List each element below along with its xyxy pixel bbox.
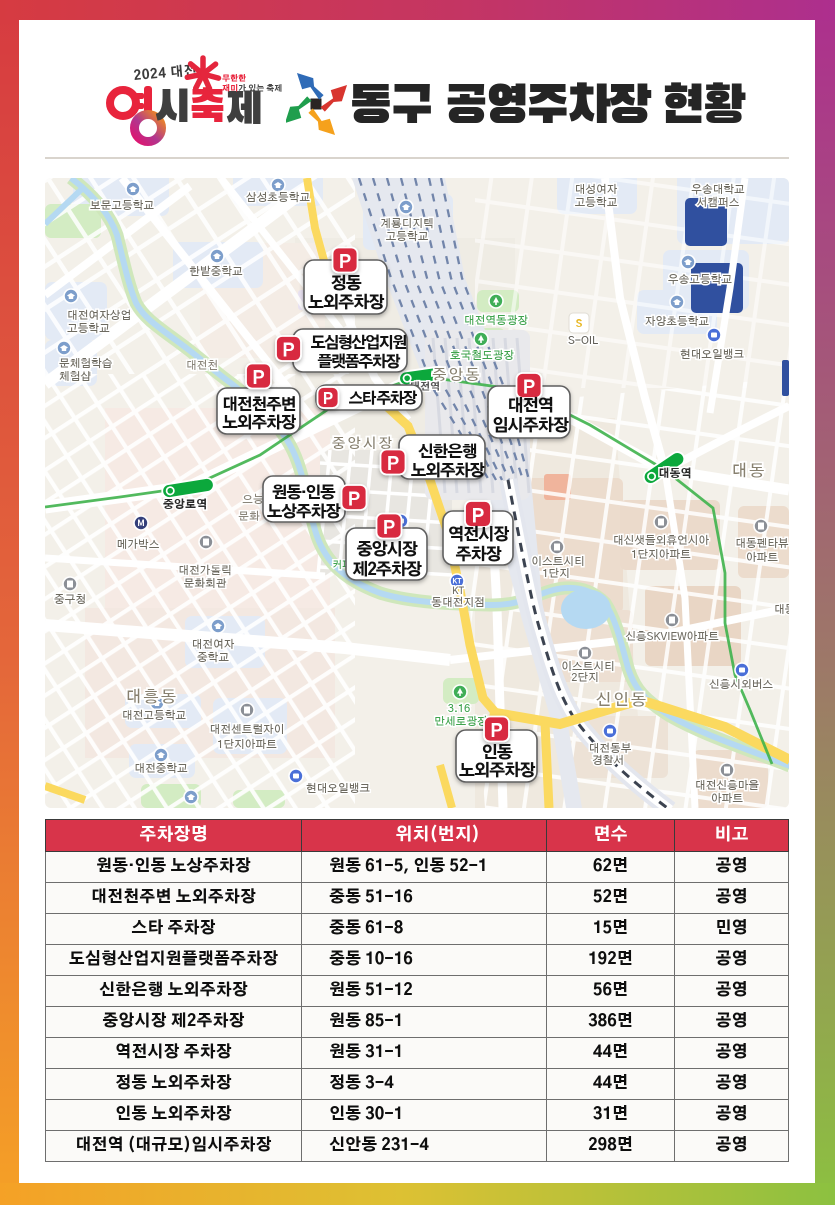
svg-text:대동역: 대동역 <box>658 467 691 480</box>
svg-text:신흥SKVIEW아파트: 신흥SKVIEW아파트 <box>625 630 719 643</box>
svg-text:신흥시외버스: 신흥시외버스 <box>709 679 773 691</box>
svg-text:이스트시티: 이스트시티 <box>531 556 585 568</box>
svg-text:P: P <box>523 380 535 398</box>
svg-text:중학교: 중학교 <box>197 651 229 664</box>
svg-text:으능: 으능 <box>242 493 264 506</box>
svg-text:현대오일뱅크: 현대오일뱅크 <box>680 348 744 361</box>
svg-text:체험샵: 체험샵 <box>59 370 91 383</box>
svg-text:한밭중학교: 한밭중학교 <box>189 265 243 278</box>
svg-text:대전천: 대전천 <box>186 359 218 372</box>
svg-text:시: 시 <box>154 88 190 132</box>
svg-text:문체험학습: 문체험학습 <box>59 357 113 370</box>
svg-text:보문고등학교: 보문고등학교 <box>90 199 154 212</box>
svg-text:동대전지점: 동대전지점 <box>431 596 485 609</box>
svg-text:1단지아파트: 1단지아파트 <box>217 738 277 751</box>
svg-text:S: S <box>576 319 583 330</box>
svg-text:대전고등학교: 대전고등학교 <box>122 709 186 722</box>
svg-text:노외주차장: 노외주차장 <box>222 414 297 432</box>
svg-text:중앙시장: 중앙시장 <box>332 436 394 451</box>
svg-text:현대오일뱅크: 현대오일뱅크 <box>306 782 370 795</box>
svg-text:대전역동광장: 대전역동광장 <box>464 314 528 327</box>
svg-text:대전중학교: 대전중학교 <box>134 762 188 775</box>
svg-text:문화회관: 문화회관 <box>184 577 227 590</box>
svg-text:P: P <box>282 343 294 361</box>
svg-text:우송대학교: 우송대학교 <box>691 183 745 196</box>
svg-text:P: P <box>252 370 264 388</box>
svg-text:중구청: 중구청 <box>54 593 86 606</box>
svg-text:S-OIL: S-OIL <box>568 336 598 347</box>
svg-text:우송고등학교: 우송고등학교 <box>668 273 732 286</box>
svg-text:계룡디지텍: 계룡디지텍 <box>380 218 434 230</box>
svg-text:P: P <box>383 520 395 538</box>
svg-text:KT: KT <box>452 578 462 586</box>
svg-text:대전신흥마을: 대전신흥마을 <box>695 779 759 792</box>
svg-text:무한한: 무한한 <box>222 74 246 83</box>
svg-text:대신샛들외휴언시아: 대신샛들외휴언시아 <box>613 534 710 547</box>
svg-text:P: P <box>348 492 360 510</box>
svg-text:P: P <box>323 392 333 408</box>
svg-text:1단지아파트: 1단지아파트 <box>631 548 691 561</box>
svg-text:인동: 인동 <box>481 743 513 762</box>
svg-text:아파트: 아파트 <box>711 792 743 805</box>
svg-text:신인동: 신인동 <box>596 692 649 709</box>
svg-text:대전가톨릭: 대전가톨릭 <box>178 564 232 577</box>
svg-text:정동: 정동 <box>330 274 362 293</box>
svg-text:대흥동: 대흥동 <box>126 689 179 706</box>
svg-text:삼성초등학교: 삼성초등학교 <box>246 191 310 204</box>
svg-text:경찰서: 경찰서 <box>592 754 624 767</box>
svg-text:고등학교: 고등학교 <box>575 196 618 209</box>
svg-text:고등학교: 고등학교 <box>67 322 110 335</box>
svg-text:만세로광장: 만세로광장 <box>434 715 488 728</box>
svg-text:1단지: 1단지 <box>542 567 570 580</box>
svg-text:대동펜타뷰: 대동펜타뷰 <box>735 537 789 550</box>
svg-text:대성여자: 대성여자 <box>575 183 618 196</box>
svg-text:대전센트럴자이: 대전센트럴자이 <box>210 723 285 736</box>
svg-text:대전역: 대전역 <box>507 396 553 415</box>
svg-text:재미가 있는 축제: 재미가 있는 축제 <box>222 84 282 93</box>
svg-text:대전동부: 대전동부 <box>589 742 632 755</box>
svg-text:P: P <box>339 254 351 272</box>
svg-text:노외주차장: 노외주차장 <box>459 761 537 780</box>
svg-text:고등학교: 고등학교 <box>386 230 429 243</box>
svg-text:2단지: 2단지 <box>571 671 599 684</box>
svg-text:자양초등학교: 자양초등학교 <box>645 315 709 328</box>
svg-text:임시주차장: 임시주차장 <box>492 416 570 435</box>
svg-text:P: P <box>387 456 399 474</box>
svg-text:대동초: 대동초 <box>774 603 789 616</box>
svg-text:중앙로역: 중앙로역 <box>163 498 207 511</box>
svg-text:노외주차장: 노외주차장 <box>410 462 485 480</box>
svg-text:P: P <box>490 723 502 741</box>
svg-text:중앙시장: 중앙시장 <box>356 540 418 559</box>
svg-text:제: 제 <box>225 90 263 134</box>
svg-text:역전시장: 역전시장 <box>448 525 510 544</box>
svg-text:대전여자상업: 대전여자상업 <box>67 309 131 322</box>
svg-text:대전천주변: 대전천주변 <box>222 396 296 414</box>
svg-text:M: M <box>137 519 144 528</box>
svg-text:메가박스: 메가박스 <box>117 538 160 551</box>
svg-text:3.16: 3.16 <box>448 704 471 715</box>
svg-text:문화: 문화 <box>238 511 260 523</box>
svg-text:노외주차장: 노외주차장 <box>308 293 386 312</box>
svg-text:아파트: 아파트 <box>746 551 778 564</box>
svg-text:제2주차장: 제2주차장 <box>352 560 423 579</box>
svg-text:원동·인동: 원동·인동 <box>271 484 335 502</box>
svg-text:대전여자: 대전여자 <box>192 638 235 651</box>
svg-text:호국철도광장: 호국철도광장 <box>450 349 514 362</box>
svg-text:신한은행: 신한은행 <box>418 442 477 461</box>
svg-text:중앙동: 중앙동 <box>432 368 482 384</box>
svg-text:주차장: 주차장 <box>455 545 502 564</box>
svg-text:KT: KT <box>452 587 465 597</box>
svg-text:P: P <box>472 507 485 526</box>
svg-text:대동: 대동 <box>731 463 766 480</box>
svg-text:이스트시티: 이스트시티 <box>561 661 615 673</box>
svg-text:노상주차장: 노상주차장 <box>266 503 341 521</box>
svg-text:스타 주차장: 스타 주차장 <box>348 390 417 408</box>
svg-text:서캠퍼스: 서캠퍼스 <box>697 197 740 209</box>
svg-text:축: 축 <box>189 87 226 132</box>
